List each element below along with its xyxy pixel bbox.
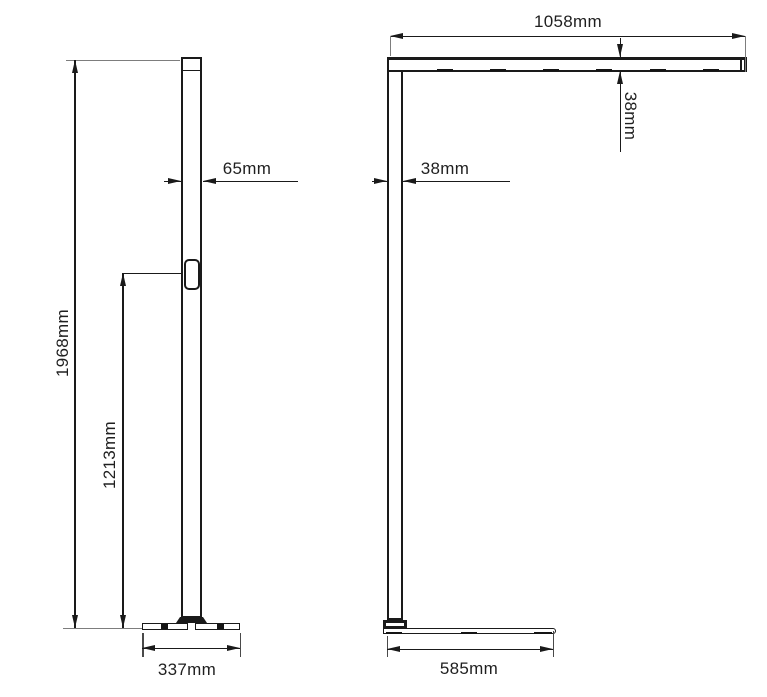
led-joint	[437, 69, 453, 72]
dimension-line-base-depth	[387, 649, 553, 650]
dimension-line-switch-height	[122, 273, 124, 628]
base-pad	[461, 632, 477, 634]
led-joint	[543, 69, 559, 72]
front-pole-outline	[181, 57, 202, 618]
arrowhead	[390, 33, 403, 39]
label-pole-depth: 38mm	[421, 159, 469, 179]
arrowhead	[374, 178, 387, 184]
arrowhead	[142, 645, 155, 651]
arrowhead	[168, 178, 181, 184]
base-pad	[534, 632, 552, 634]
leader-pole-depth-right	[403, 181, 510, 182]
front-touch-control	[184, 259, 200, 290]
leader-pole-width-right	[203, 181, 298, 182]
led-joint	[596, 69, 612, 72]
arrowhead	[403, 178, 416, 184]
front-base-joint-right	[217, 624, 224, 630]
extension-line-head-left	[390, 36, 392, 56]
drawing-canvas: 1968mm 1213mm 65mm 337mm	[0, 0, 767, 697]
extension-line-head-right	[745, 36, 747, 72]
label-switch-height: 1213mm	[100, 421, 120, 489]
arrowhead	[732, 33, 745, 39]
arrowhead	[387, 646, 400, 652]
arrowhead	[617, 71, 623, 84]
dimension-line-base-width	[142, 648, 240, 649]
front-pole-cap-line	[183, 70, 200, 71]
led-joint	[490, 69, 506, 72]
front-base-joint-left	[161, 624, 168, 630]
dimension-line-head-length	[390, 36, 745, 37]
arrowhead	[120, 273, 126, 286]
dimension-line-total-height	[74, 60, 76, 628]
led-joint	[703, 69, 719, 72]
arrowhead	[227, 645, 240, 651]
arrowhead	[540, 646, 553, 652]
arrowhead	[617, 44, 623, 57]
label-head-length: 1058mm	[534, 12, 602, 32]
lamp-head-endcap-line	[740, 60, 742, 70]
leader-line-switch-height	[122, 273, 181, 274]
label-total-height: 1968mm	[53, 309, 73, 377]
arrowhead	[120, 615, 126, 628]
extension-line-top	[66, 60, 180, 61]
label-base-width: 337mm	[158, 660, 216, 680]
arrowhead	[203, 178, 216, 184]
base-pad	[386, 632, 402, 634]
arrowhead	[72, 615, 78, 628]
side-pole-outline	[387, 57, 403, 620]
label-head-thickness: 38mm	[620, 92, 640, 140]
arrowhead	[72, 60, 78, 73]
label-base-depth: 585mm	[440, 659, 498, 679]
led-joint	[650, 69, 666, 72]
extension-line-base-depth-right	[553, 631, 555, 657]
label-pole-width: 65mm	[223, 159, 271, 179]
